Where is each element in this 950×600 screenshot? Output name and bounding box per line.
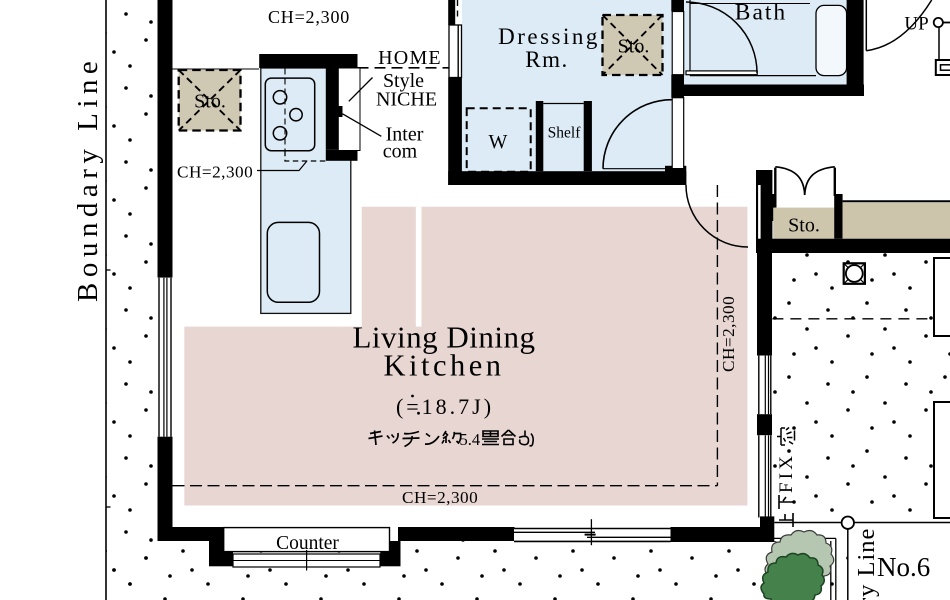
svg-text:CH=2,300: CH=2,300 bbox=[402, 488, 478, 507]
svg-text:com: com bbox=[383, 141, 418, 163]
svg-text:Shelf: Shelf bbox=[548, 125, 582, 142]
svg-text:Sto.: Sto. bbox=[788, 215, 820, 237]
svg-text:Dressing: Dressing bbox=[498, 24, 600, 49]
svg-text:CH=2,300: CH=2,300 bbox=[719, 296, 738, 372]
svg-text:Counter: Counter bbox=[276, 533, 339, 554]
svg-text:Sto.: Sto. bbox=[194, 91, 226, 113]
svg-text:Bath: Bath bbox=[735, 0, 787, 26]
svg-text:NICHE: NICHE bbox=[376, 89, 437, 111]
svg-text:W: W bbox=[489, 131, 508, 153]
svg-text:CH=2,300: CH=2,300 bbox=[268, 7, 350, 27]
svg-text:(=18.7J): (=18.7J) bbox=[396, 394, 494, 419]
svg-text:Rm.: Rm. bbox=[525, 47, 568, 72]
svg-text:Kitchen: Kitchen bbox=[383, 349, 504, 383]
svg-text:5.4: 5.4 bbox=[460, 430, 481, 449]
svg-text:Boundary Line: Boundary Line bbox=[72, 56, 104, 302]
svg-text:Sto.: Sto. bbox=[618, 36, 650, 58]
svg-text:CH=2,300: CH=2,300 bbox=[177, 163, 253, 182]
svg-text:ry Line: ry Line bbox=[853, 528, 880, 600]
svg-text:FIX: FIX bbox=[776, 453, 797, 493]
svg-text:HOME: HOME bbox=[378, 47, 442, 69]
svg-text:No.6: No.6 bbox=[877, 552, 930, 582]
svg-text:UP: UP bbox=[904, 14, 928, 35]
